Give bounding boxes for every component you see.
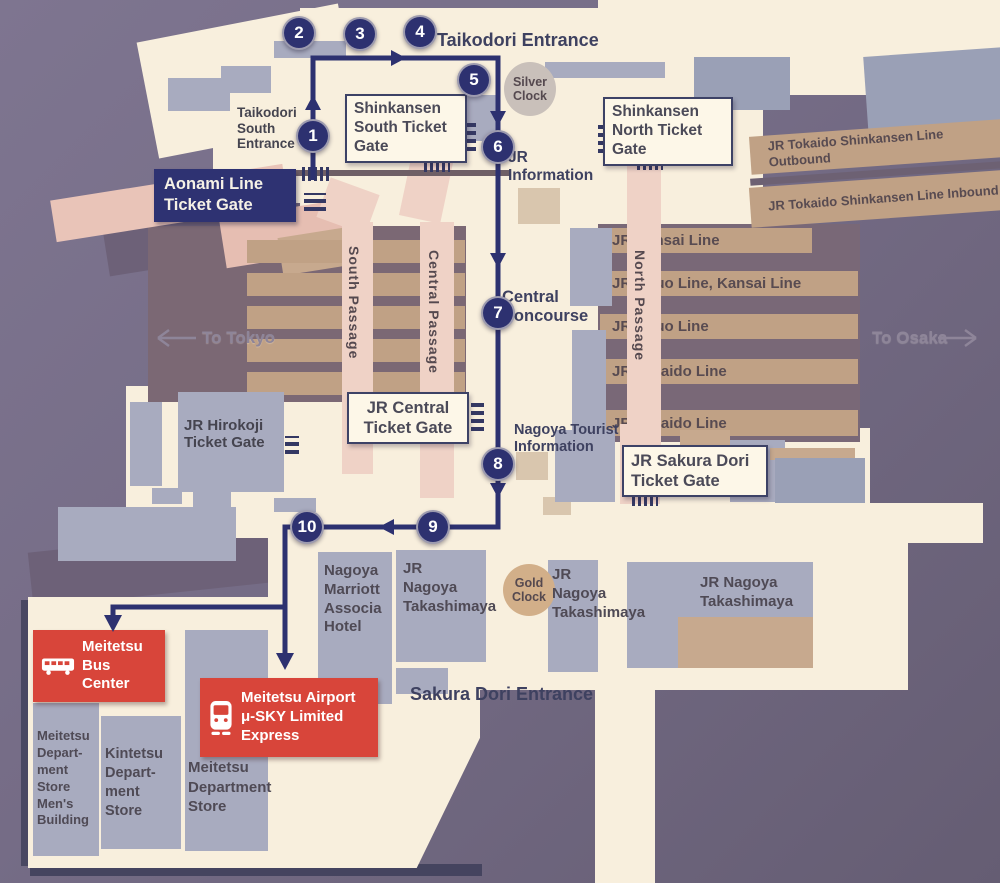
meitetsu-dept-label: Meitetsu Department Store bbox=[188, 758, 300, 817]
station-map: JR Kansai Line JR Chuo Line, Kansai Line… bbox=[0, 0, 1000, 883]
tourist-information-label: Nagoya Tourist Information bbox=[514, 422, 619, 456]
structure-block bbox=[193, 490, 231, 510]
sakura-dori-entrance-label: Sakura Dori Entrance bbox=[410, 684, 593, 705]
meitetsu-mens-label: Meitetsu Depart- ment Store Men's Buildi… bbox=[37, 728, 97, 829]
jr-central-gate-icon bbox=[471, 399, 484, 431]
structure-block bbox=[545, 62, 665, 78]
south-passage-label: South Passage bbox=[346, 246, 362, 359]
taikodori-entrance-label: Taikodori Entrance bbox=[437, 30, 599, 51]
platform-label: JR Tokaido Shinkansen Line Inbound bbox=[750, 182, 999, 216]
north-passage-label: North Passage bbox=[632, 250, 648, 361]
structure-block bbox=[221, 66, 271, 93]
shinkansen-south-gate-label: Shinkansen South Ticket Gate bbox=[345, 94, 467, 163]
left-dark-strip bbox=[21, 600, 28, 866]
central-passage-label: Central Passage bbox=[426, 250, 442, 374]
takashimaya-3-label: JR Nagoya Takashimaya bbox=[700, 574, 815, 612]
structure-block bbox=[58, 507, 236, 561]
gold-clock-label: Gold Clock bbox=[509, 576, 549, 605]
structure-block bbox=[516, 452, 548, 480]
airport-express-label: Meitetsu Airport μ-SKY Limited Express bbox=[241, 689, 369, 745]
route-waypoint-2: 2 bbox=[282, 16, 316, 50]
aonami-gate-icon bbox=[304, 193, 326, 211]
aonami-gate-icon bbox=[302, 167, 329, 181]
route-waypoint-5: 5 bbox=[457, 63, 491, 97]
structure-block bbox=[518, 188, 560, 224]
bottom-strip bbox=[595, 690, 655, 883]
route-waypoint-9: 9 bbox=[416, 510, 450, 544]
jr-hirokoji-gate-label: JR Hirokoji Ticket Gate bbox=[184, 417, 289, 452]
route-waypoint-8: 8 bbox=[481, 447, 515, 481]
route-waypoint-4: 4 bbox=[403, 15, 437, 49]
jr-sakura-dori-gate-label: JR Sakura Dori Ticket Gate bbox=[622, 445, 768, 497]
structure-block bbox=[775, 458, 865, 503]
takashimaya-1-label: JR Nagoya Takashimaya bbox=[403, 560, 473, 616]
structure-block bbox=[130, 402, 162, 486]
marriott-hotel-label: Nagoya Marriott Associa Hotel bbox=[324, 562, 392, 637]
route-waypoint-10: 10 bbox=[290, 510, 324, 544]
arrow-right-icon bbox=[936, 326, 984, 350]
aonami-gate-label: Aonami Line Ticket Gate bbox=[154, 169, 296, 222]
bus-icon bbox=[41, 656, 75, 676]
structure-block bbox=[152, 488, 182, 504]
route-waypoint-3: 3 bbox=[343, 17, 377, 51]
platform-label: JR Tokaido Line bbox=[600, 415, 727, 432]
silver-clock: Silver Clock bbox=[504, 62, 556, 116]
route-waypoint-1: 1 bbox=[296, 119, 330, 153]
gold-clock: Gold Clock bbox=[503, 564, 555, 616]
silver-clock-label: Silver Clock bbox=[510, 75, 550, 104]
meitetsu-airport-express: Meitetsu Airport μ-SKY Limited Express bbox=[200, 678, 378, 757]
platform-label: JR Tokaido Line bbox=[600, 363, 727, 380]
to-tokyo-label: To Tokyo bbox=[202, 328, 275, 348]
shinkansen-north-gate-label: Shinkansen North Ticket Gate bbox=[603, 97, 733, 166]
kintetsu-label: Kintetsu Depart- ment Store bbox=[105, 745, 179, 820]
jr-information-label: JR Information bbox=[508, 149, 603, 185]
route-waypoint-6: 6 bbox=[481, 130, 515, 164]
meitetsu-bus-center: Meitetsu Bus Center bbox=[33, 630, 165, 702]
takashimaya-block-3-annex bbox=[678, 617, 813, 668]
train-icon bbox=[208, 700, 234, 736]
arrow-left-icon bbox=[150, 326, 198, 350]
route-waypoint-7: 7 bbox=[481, 296, 515, 330]
central-concourse-label: Central Concourse bbox=[502, 288, 592, 326]
bus-center-label: Meitetsu Bus Center bbox=[82, 638, 154, 694]
takashimaya-2-label: JR Nagoya Takashimaya bbox=[552, 566, 622, 622]
jr-central-gate-label: JR Central Ticket Gate bbox=[347, 392, 469, 444]
